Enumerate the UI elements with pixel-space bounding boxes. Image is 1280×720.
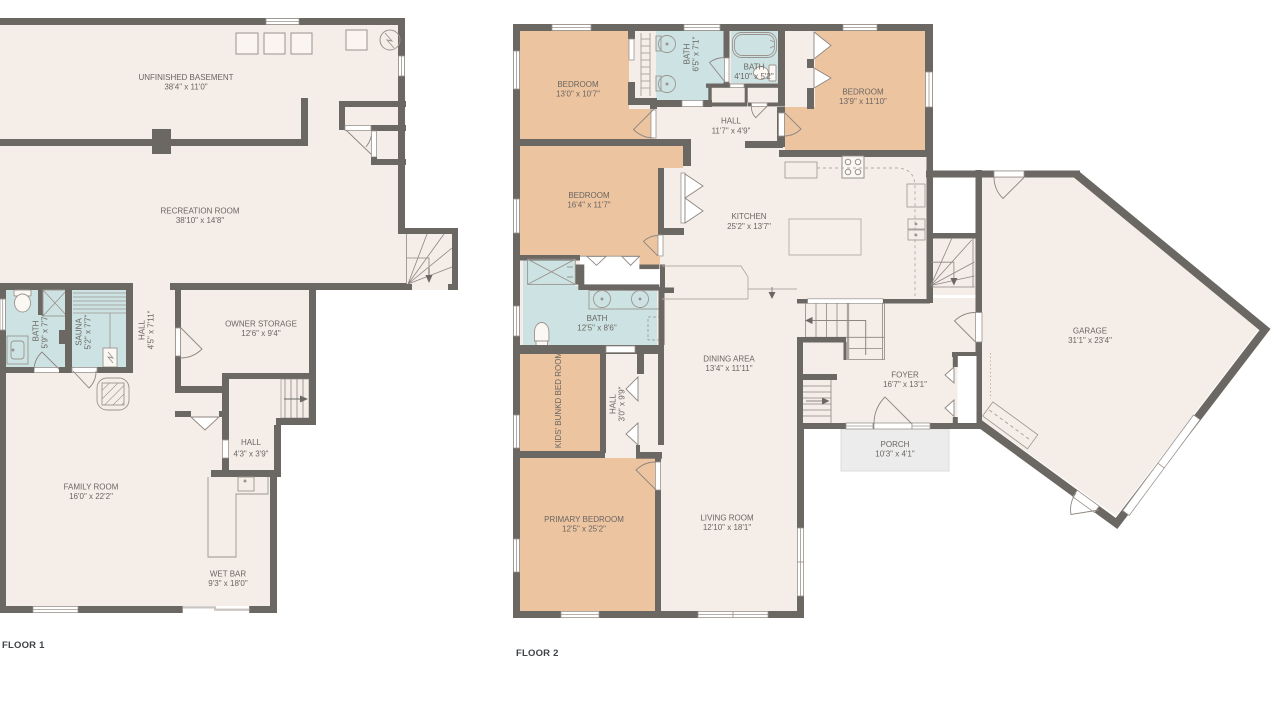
svg-text:HALL: HALL — [138, 319, 147, 340]
svg-text:16'4" x 11'7": 16'4" x 11'7" — [567, 201, 610, 210]
svg-text:HALL: HALL — [609, 393, 618, 414]
svg-text:PORCH: PORCH — [881, 440, 910, 449]
svg-text:9'3" x 18'0": 9'3" x 18'0" — [208, 579, 248, 588]
svg-text:BATH: BATH — [587, 314, 608, 323]
svg-text:38'10" x 14'8": 38'10" x 14'8" — [176, 216, 224, 225]
svg-text:BEDROOM: BEDROOM — [557, 80, 599, 89]
svg-text:KITCHEN: KITCHEN — [731, 212, 766, 221]
svg-text:WET BAR: WET BAR — [210, 570, 247, 579]
svg-text:DINING AREA: DINING AREA — [703, 355, 755, 364]
svg-text:16'0" x 22'2": 16'0" x 22'2" — [69, 492, 113, 501]
svg-text:13'4" x 11'11": 13'4" x 11'11" — [705, 364, 752, 373]
svg-text:13'0" x 10'7": 13'0" x 10'7" — [556, 90, 600, 99]
svg-text:4'5" x 7'11": 4'5" x 7'11" — [147, 310, 156, 349]
svg-text:SAUNA: SAUNA — [75, 318, 84, 346]
svg-text:4'3" x 3'9": 4'3" x 3'9" — [234, 450, 269, 459]
svg-text:HALL: HALL — [721, 117, 742, 126]
svg-text:3'0" x 9'9": 3'0" x 9'9" — [618, 386, 627, 421]
svg-text:OWNER STORAGE: OWNER STORAGE — [225, 320, 297, 329]
svg-text:HALL: HALL — [241, 438, 262, 447]
svg-text:KIDS' BUNKD BED ROOM: KIDS' BUNKD BED ROOM — [554, 352, 563, 449]
svg-text:RECREATION ROOM: RECREATION ROOM — [161, 207, 240, 216]
svg-text:5'9" x 7'7": 5'9" x 7'7" — [41, 313, 50, 348]
svg-text:FLOOR 1: FLOOR 1 — [2, 640, 45, 651]
svg-text:25'2" x 13'7": 25'2" x 13'7" — [727, 222, 771, 231]
svg-text:10'3" x 4'1": 10'3" x 4'1" — [875, 450, 915, 459]
svg-text:FAMILY ROOM: FAMILY ROOM — [64, 483, 119, 492]
svg-text:31'1" x 23'4": 31'1" x 23'4" — [1068, 336, 1112, 345]
svg-text:PRIMARY BEDROOM: PRIMARY BEDROOM — [544, 515, 624, 524]
svg-text:BATH: BATH — [683, 43, 692, 64]
svg-text:11'7" x 4'9": 11'7" x 4'9" — [712, 127, 751, 136]
svg-text:5'2" x 7'7": 5'2" x 7'7" — [84, 314, 93, 349]
svg-text:UNFINISHED BASEMENT: UNFINISHED BASEMENT — [138, 73, 233, 82]
svg-text:12'6" x 9'4": 12'6" x 9'4" — [241, 329, 281, 338]
svg-text:38'4" x 11'0": 38'4" x 11'0" — [164, 83, 207, 92]
svg-text:BEDROOM: BEDROOM — [568, 191, 610, 200]
svg-text:GARAGE: GARAGE — [1073, 327, 1107, 336]
svg-text:LIVING ROOM: LIVING ROOM — [700, 514, 754, 523]
svg-text:BEDROOM: BEDROOM — [842, 88, 884, 97]
svg-text:FOYER: FOYER — [891, 371, 919, 380]
svg-text:12'5" x 25'2": 12'5" x 25'2" — [562, 525, 606, 534]
svg-text:BATH: BATH — [744, 63, 765, 72]
svg-text:12'10" x 18'1": 12'10" x 18'1" — [703, 523, 751, 532]
svg-text:12'5" x 8'6": 12'5" x 8'6" — [577, 324, 617, 333]
svg-text:4'10" x 5'2": 4'10" x 5'2" — [734, 72, 774, 81]
svg-text:13'9" x 11'10": 13'9" x 11'10" — [839, 97, 887, 106]
svg-text:FLOOR 2: FLOOR 2 — [516, 648, 559, 659]
svg-text:16'7" x 13'1": 16'7" x 13'1" — [883, 380, 927, 389]
svg-text:6'5" x 7'1": 6'5" x 7'1" — [692, 36, 701, 71]
svg-text:BATH: BATH — [32, 320, 41, 341]
